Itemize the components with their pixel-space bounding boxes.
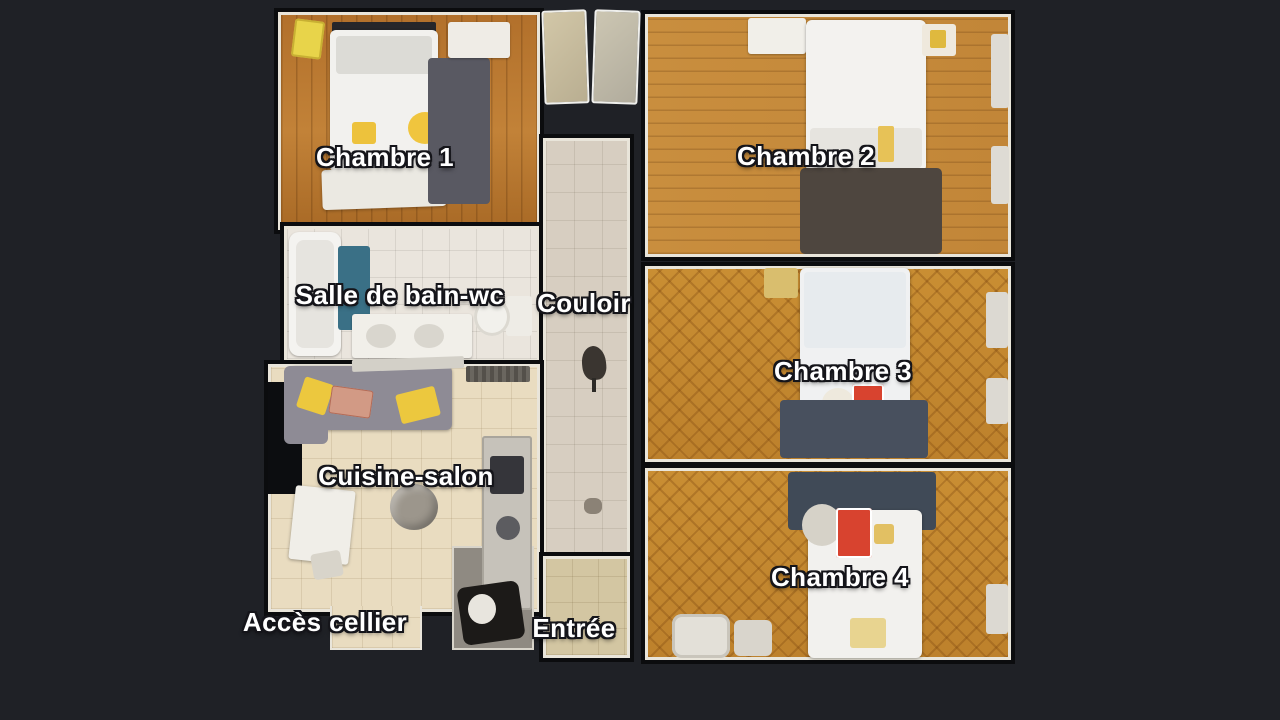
nightstand-lamp	[930, 30, 946, 48]
door-panel-right	[591, 9, 640, 105]
bed-pillows	[336, 36, 432, 74]
yellow-blanket	[850, 618, 886, 648]
door-panel-left	[541, 9, 589, 105]
yellow-ladder	[878, 126, 894, 162]
label-chambre-4: Chambre 4	[771, 564, 909, 590]
radiator	[991, 146, 1009, 204]
stove	[490, 456, 524, 494]
cabinet	[748, 18, 806, 54]
label-couloir: Couloir	[537, 290, 631, 316]
yellow-cushion	[352, 122, 376, 144]
chair	[310, 550, 344, 581]
label-salle-de-bain-wc: Salle de bain-wc	[296, 282, 505, 308]
yellow-cushion	[874, 524, 894, 544]
coat-stand-base	[592, 378, 596, 392]
floorplan-canvas: Chambre 1 Chambre 2 Salle de bain-wc Cou…	[0, 0, 1280, 720]
bathroom-fixture	[672, 614, 730, 658]
radiator	[986, 292, 1008, 348]
bathroom-fixture	[734, 620, 772, 656]
white-object	[468, 594, 496, 624]
label-acces-cellier: Accès cellier	[243, 609, 407, 635]
radiator	[991, 34, 1009, 108]
floral-pillow	[328, 385, 373, 419]
radiator	[466, 366, 530, 382]
kitchen-sink	[496, 516, 520, 540]
label-chambre-3: Chambre 3	[774, 358, 912, 384]
sink-basin	[414, 324, 444, 348]
nightstand	[764, 268, 798, 298]
shoes	[584, 498, 602, 514]
bed-duvet	[804, 272, 906, 348]
label-entree: Entrée	[532, 615, 615, 641]
label-cuisine-salon: Cuisine-salon	[318, 463, 494, 489]
radiator	[986, 378, 1008, 424]
label-chambre-1: Chambre 1	[316, 144, 454, 170]
rug	[780, 400, 928, 458]
dresser	[448, 22, 510, 58]
rug	[428, 58, 490, 204]
red-cushion	[836, 508, 872, 558]
label-chambre-2: Chambre 2	[737, 143, 875, 169]
radiator	[986, 584, 1008, 634]
rug	[800, 168, 942, 254]
yellow-towel	[291, 18, 325, 59]
sink-basin	[366, 324, 396, 348]
